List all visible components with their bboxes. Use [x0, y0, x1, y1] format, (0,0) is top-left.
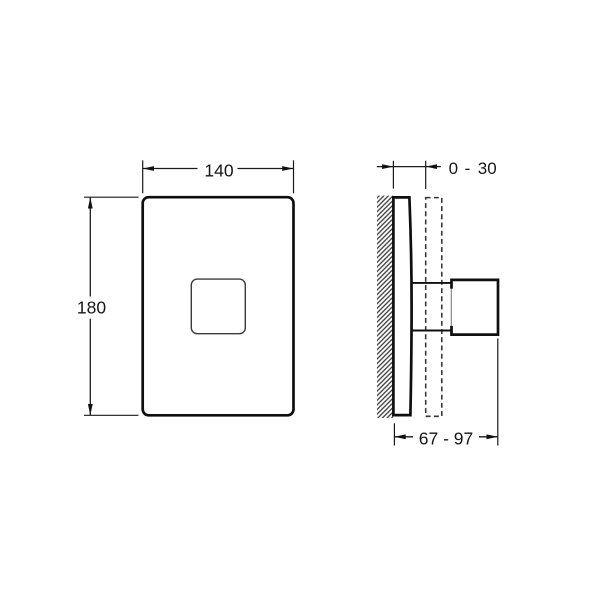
- svg-text:67 - 97: 67 - 97: [419, 428, 473, 448]
- svg-text:180: 180: [77, 298, 106, 318]
- svg-text:140: 140: [204, 160, 233, 180]
